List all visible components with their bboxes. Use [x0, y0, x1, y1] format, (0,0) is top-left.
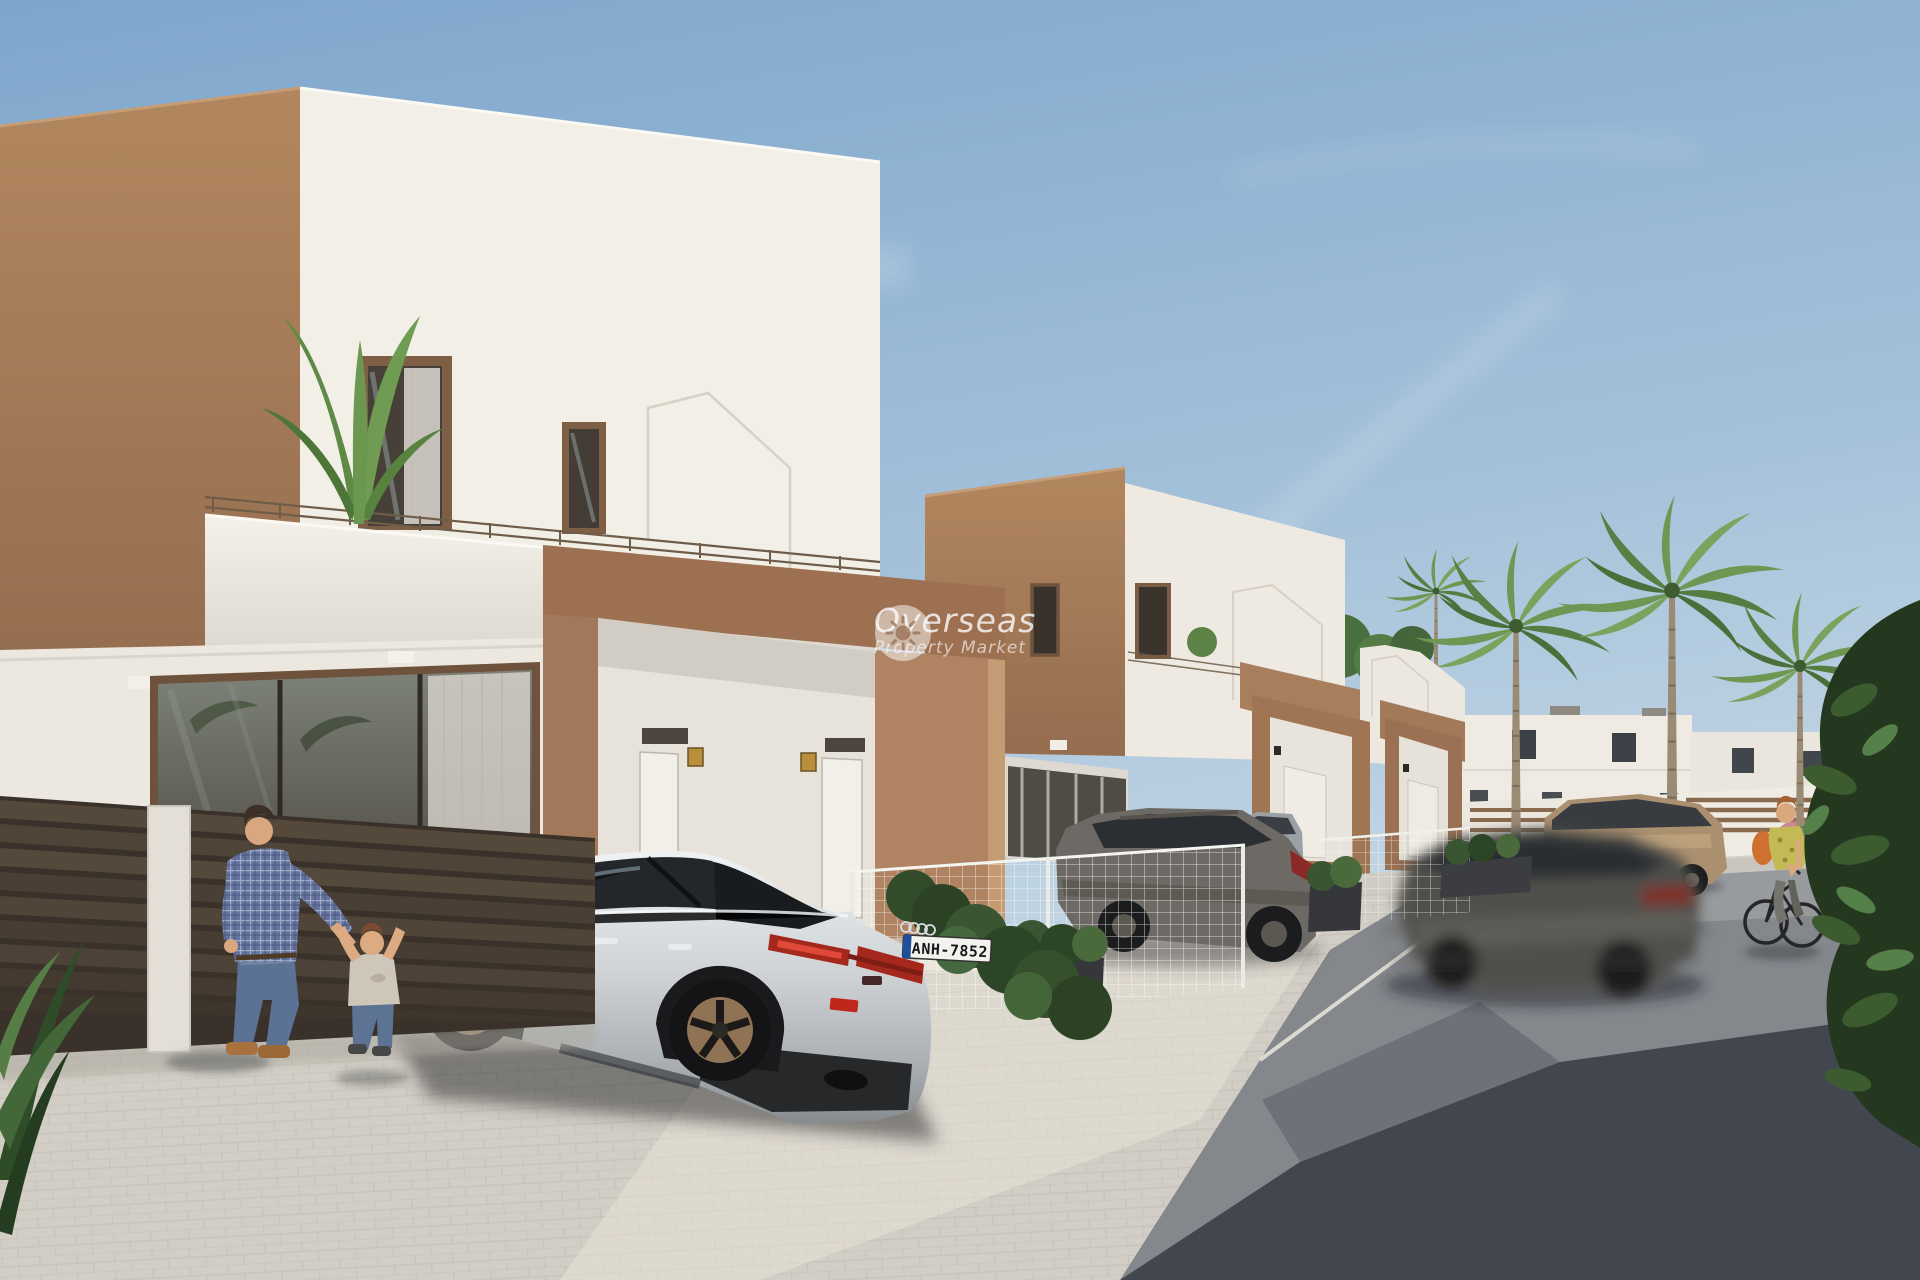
gate-pier — [148, 806, 190, 1052]
man-shoe — [226, 1042, 258, 1055]
wall-lamp — [1050, 740, 1067, 750]
toddler-head — [360, 931, 384, 955]
cyclist-head — [1776, 803, 1796, 823]
scene-canvas: ANH-7852 — [0, 0, 1920, 1280]
man-head — [245, 817, 273, 845]
rs-badge — [862, 976, 882, 985]
license-plate: ANH-7852 — [902, 935, 991, 963]
house-number-plaque — [801, 753, 816, 771]
property-render-image: ANH-7852 — [0, 0, 1920, 1280]
man-shoe — [258, 1045, 290, 1058]
wall-lamp — [128, 676, 150, 689]
house-number-plaque — [688, 748, 703, 766]
upstairs-window-2 — [562, 422, 606, 534]
wall-lamp — [388, 651, 414, 663]
